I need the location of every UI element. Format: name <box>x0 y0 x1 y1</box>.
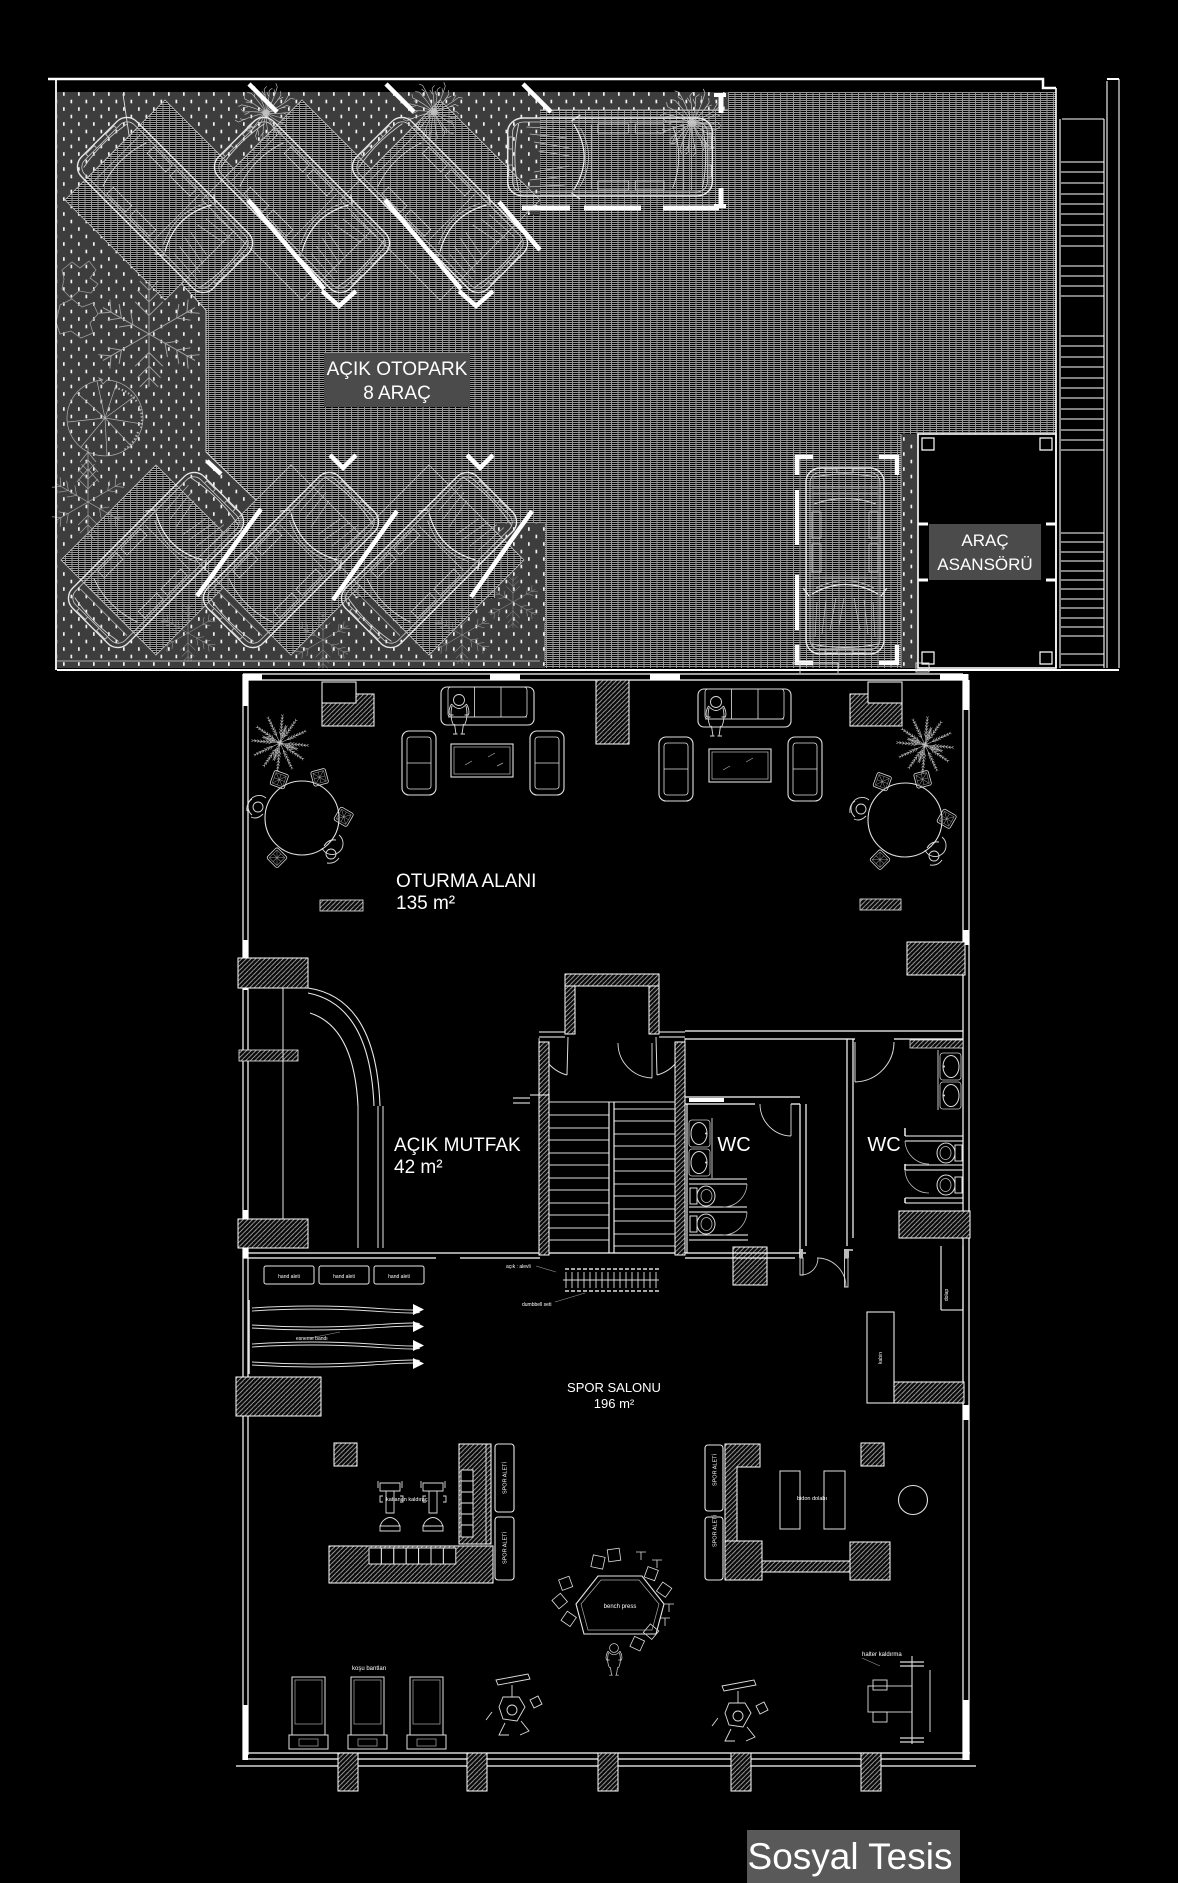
svg-text:dumbbell seti: dumbbell seti <box>522 1302 551 1308</box>
svg-text:Sosyal Tesis: Sosyal Tesis <box>748 1836 953 1877</box>
svg-text:dolap: dolap <box>944 1289 950 1301</box>
svg-text:hand aleti: hand aleti <box>388 1274 410 1280</box>
svg-text:hand aleti: hand aleti <box>333 1274 355 1280</box>
svg-text:kabin: kabin <box>878 1352 884 1364</box>
svg-text:esneme bandı: esneme bandı <box>296 1336 328 1342</box>
svg-text:42 m²: 42 m² <box>394 1157 443 1178</box>
svg-text:196 m²: 196 m² <box>594 1396 635 1411</box>
svg-text:AÇIK MUTFAK: AÇIK MUTFAK <box>394 1135 521 1156</box>
svg-text:SPOR ALETİ: SPOR ALETİ <box>712 1453 719 1486</box>
svg-text:OTURMA ALANI: OTURMA ALANI <box>396 871 536 892</box>
svg-text:SPOR ALETİ: SPOR ALETİ <box>712 1514 719 1547</box>
svg-text:hand aleti: hand aleti <box>278 1274 300 1280</box>
svg-text:SPOR ALETİ: SPOR ALETİ <box>502 1531 509 1564</box>
svg-text:ARAÇ: ARAÇ <box>961 531 1008 550</box>
svg-text:WC: WC <box>717 1134 750 1156</box>
svg-text:SPOR SALONU: SPOR SALONU <box>567 1380 661 1395</box>
svg-text:ASANSÖRÜ: ASANSÖRÜ <box>937 555 1032 574</box>
svg-text:SPOR ALETİ: SPOR ALETİ <box>502 1461 509 1494</box>
svg-text:WC: WC <box>867 1134 900 1156</box>
svg-text:katlanan kaldıraç: katlanan kaldıraç <box>386 1497 428 1503</box>
svg-text:bench press: bench press <box>604 1604 637 1610</box>
svg-text:koşu bantları: koşu bantları <box>352 1666 387 1672</box>
svg-text:bidon dolabı: bidon dolabı <box>797 1496 827 1502</box>
svg-text:açık : alevli: açık : alevli <box>506 1264 531 1270</box>
svg-text:halter kaldırma: halter kaldırma <box>862 1652 902 1658</box>
svg-text:AÇIK OTOPARK: AÇIK OTOPARK <box>327 359 468 380</box>
svg-text:135 m²: 135 m² <box>396 893 455 914</box>
svg-text:8 ARAÇ: 8 ARAÇ <box>363 383 431 404</box>
